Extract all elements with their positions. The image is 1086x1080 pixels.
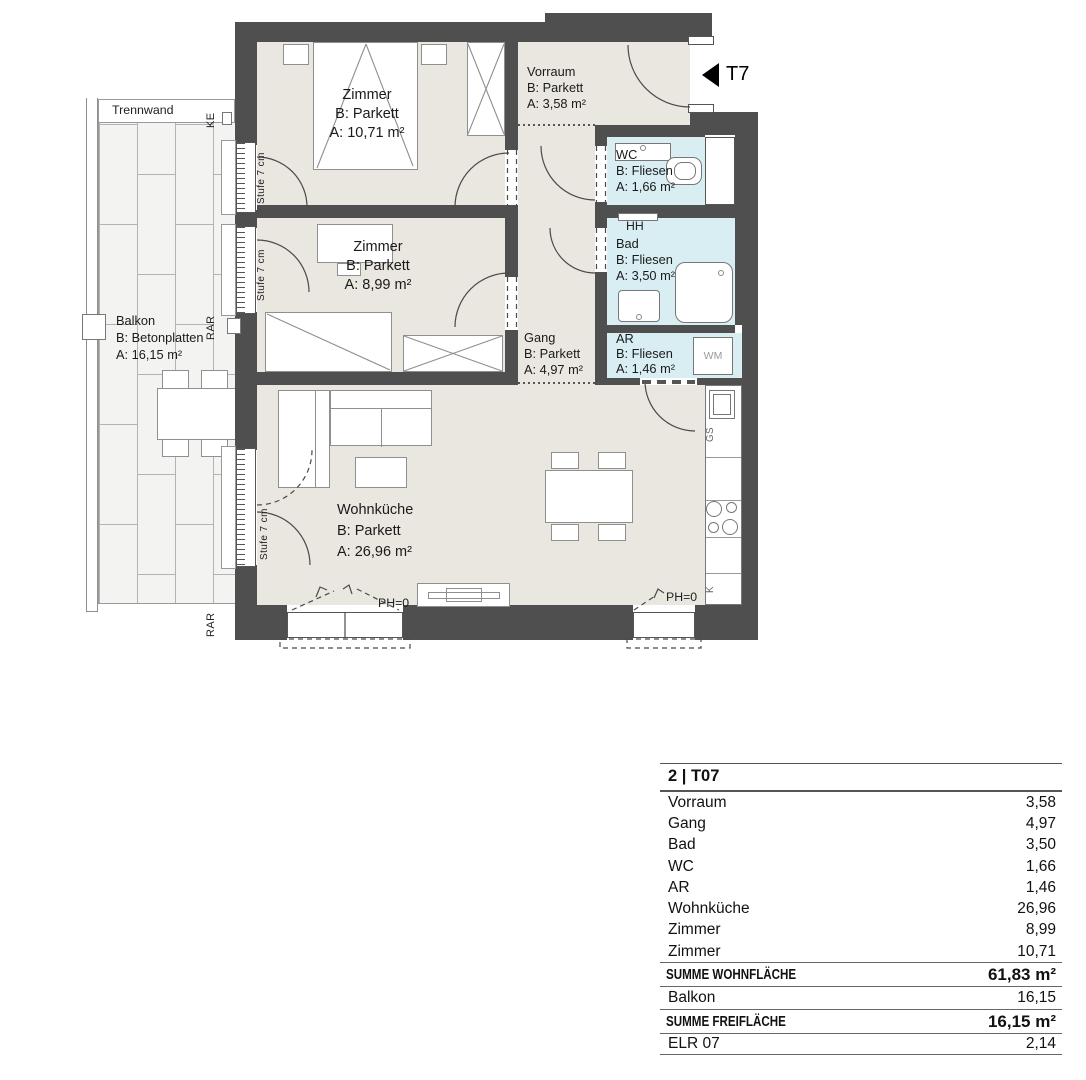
ke-fitting [222,112,232,125]
entrance-threshold [688,36,714,45]
floorplan-page: Trennwand [0,0,1086,1080]
wall-segment [505,207,518,277]
row-label: Bad [668,836,696,854]
room-floor: B: Parkett [527,80,586,96]
stufe-label: Stufe 7 cm [256,145,270,211]
room-area: A: 4,97 m² [524,362,583,378]
table-row: Vorraum 3,58 [660,792,1062,813]
row-label: Zimmer [668,921,721,939]
cooktop-burner [726,502,737,513]
door-leaf-dashed [508,150,517,207]
row-label: Balkon [668,989,715,1007]
balcony-chair-symbol [162,370,189,389]
sum-value: 61,83 m² [988,965,1056,985]
area-table: 2 | T07 Vorraum 3,58 Gang 4,97 Bad 3,50 … [660,763,1062,1055]
row-label: Vorraum [668,794,727,812]
sum-label: SUMME WOHNFLÄCHE [666,967,796,983]
stufe-label: Stufe 7 cm [259,498,273,570]
sideboard-symbol [417,583,510,607]
door-leaf-dashed [597,228,606,272]
room-area: A: 3,50 m² [616,268,675,284]
wall-segment [505,42,518,150]
wall-segment [235,22,553,42]
planter-box [82,314,106,340]
drain-icon [718,270,724,276]
stufe-label: Stufe 7 cm [256,240,270,310]
row-value: 1,66 [1026,858,1056,876]
row-label: Gang [668,815,706,833]
room-name: AR [616,331,675,346]
sofa-symbol [330,390,432,446]
balcony-table-symbol [157,388,237,440]
rar-label: RAR [205,604,223,646]
table-row: AR 1,46 [660,877,1062,898]
room-name: Zimmer [315,86,419,105]
room-label-wc: WC B: Fliesen A: 1,66 m² [616,147,675,195]
wall-segment [235,42,257,145]
row-value: 26,96 [1017,900,1056,918]
door-leaf-dashed [508,277,517,330]
wall-segment [505,330,518,385]
room-area: A: 3,58 m² [527,96,586,112]
room-name: Bad [616,236,675,252]
gs-label: GS [705,420,742,450]
sum-living-row: SUMME WOHNFLÄCHE 61,83 m² [660,962,1062,987]
room-area: A: 1,66 m² [616,179,675,195]
entrance-label: T7 [726,63,749,86]
window-sill-dashed [280,639,410,648]
room-name: Wohnküche [337,500,413,521]
wardrobe-symbol [403,335,503,372]
room-area: A: 26,96 m² [337,542,413,563]
room-floor: B: Fliesen [616,346,675,361]
window-symbol [633,612,695,638]
table-row: WC 1,66 [660,856,1062,877]
table-row: Gang 4,97 [660,813,1062,834]
row-label: WC [668,858,694,876]
wall-segment [595,205,735,218]
row-value: 1,46 [1026,879,1056,897]
nightstand-symbol [283,44,309,65]
room-floor: B: Betonplatten [116,329,204,346]
room-name: Vorraum [527,64,586,80]
room-floor: B: Parkett [337,521,413,542]
rar-label: RAR [205,307,223,349]
row-label: Zimmer [668,943,721,961]
room-name: Balkon [116,312,204,329]
chair-symbol [598,524,626,541]
room-label-balkon: Balkon B: Betonplatten A: 16,15 m² [116,312,204,363]
balcony-chair-symbol [201,370,228,389]
k-label: K [705,578,742,602]
room-area: A: 10,71 m² [315,124,419,143]
ph0-label: PH=0 [666,590,697,604]
chair-symbol [551,452,579,469]
drain-icon [636,314,642,320]
hh-label: HH [626,219,644,233]
sofa-symbol [278,390,330,488]
row-value: 3,50 [1026,836,1056,854]
room-label-gang: Gang B: Parkett A: 4,97 m² [524,330,583,378]
balcony-railing [86,98,98,612]
sum-value: 16,15 m² [988,1012,1056,1032]
window-symbol [236,142,256,213]
room-label-wohnkueche: Wohnküche B: Parkett A: 26,96 m² [337,500,413,563]
table-title: 2 | T07 [660,763,1062,792]
room-floor: B: Fliesen [616,163,675,179]
window-sill [221,446,236,569]
wall-segment [545,13,712,42]
room-label-ar: AR B: Fliesen A: 1,46 m² [616,331,675,376]
wall-segment [697,378,742,385]
window-symbol [236,226,256,314]
sum-open-row: SUMME FREIFLÄCHE 16,15 m² [660,1009,1062,1034]
room-name: WC [616,147,675,163]
sum-label: SUMME FREIFLÄCHE [666,1014,786,1030]
room-area: A: 8,99 m² [325,276,431,295]
row-value: 4,97 [1026,815,1056,833]
window-sill [221,140,236,215]
sink-basin [713,394,731,415]
table-row: Zimmer 8,99 [660,920,1062,941]
row-label: AR [668,879,690,897]
wall-segment [595,125,705,137]
trennwand-label: Trennwand [112,103,174,117]
entrance-arrow-icon [702,63,719,87]
room-floor: B: Parkett [315,105,419,124]
row-label: Wohnküche [668,900,750,918]
table-row: ELR 07 2,14 [660,1034,1062,1055]
room-label-zimmer-1: Zimmer B: Parkett A: 10,71 m² [315,86,419,143]
entrance-threshold [688,104,714,113]
installation-shaft [705,137,735,205]
room-name: Zimmer [325,238,431,257]
room-floor: B: Fliesen [616,252,675,268]
wall-segment [403,605,633,640]
wall-segment [257,205,518,218]
shower-symbol [675,262,733,323]
wall-segment [735,135,742,325]
balcony-door-symbol [236,448,256,567]
room-label-zimmer-2: Zimmer B: Parkett A: 8,99 m² [325,238,431,295]
cooktop-burner [708,522,719,533]
balcony-chair-symbol [162,438,189,457]
wall-segment [595,135,607,146]
cooktop-burner [706,501,722,517]
table-row: Wohnküche 26,96 [660,898,1062,919]
chair-symbol [551,524,579,541]
room-label-vorraum: Vorraum B: Parkett A: 3,58 m² [527,64,586,112]
room-area: A: 16,15 m² [116,346,204,363]
row-value: 10,71 [1017,943,1056,961]
table-row: Zimmer 10,71 [660,941,1062,962]
bed-symbol [265,312,392,372]
wm-label: WM [694,350,732,362]
dining-table-symbol [545,470,633,523]
row-value: 2,14 [1026,1035,1056,1053]
room-floor: B: Parkett [524,346,583,362]
coffee-table-symbol [355,457,407,488]
row-value: 8,99 [1026,921,1056,939]
chair-symbol [598,452,626,469]
window-sill-dashed [627,639,701,648]
row-value: 16,15 [1017,989,1056,1007]
wall-segment [235,372,518,385]
room-floor: B: Parkett [325,257,431,276]
row-value: 3,58 [1026,794,1056,812]
room-area: A: 1,46 m² [616,361,675,376]
wall-segment [595,378,640,385]
row-label: ELR 07 [668,1035,720,1053]
window-sill [221,224,236,316]
table-row: Bad 3,50 [660,835,1062,856]
wardrobe-symbol [467,42,505,136]
room-name: Gang [524,330,583,346]
wall-segment [742,112,758,640]
nightstand-symbol [421,44,447,65]
wall-segment [235,605,287,640]
ph0-label: PH=0 [378,596,409,610]
cooktop-burner [722,519,738,535]
room-label-bad: Bad B: Fliesen A: 3,50 m² [616,236,675,284]
washing-machine-symbol: WM [693,337,733,375]
ke-label: KE [205,102,223,138]
table-row: Balkon 16,15 [660,987,1062,1009]
rar-fitting [227,318,241,334]
window-symbol [287,612,403,638]
door-leaf-dashed [597,146,606,202]
